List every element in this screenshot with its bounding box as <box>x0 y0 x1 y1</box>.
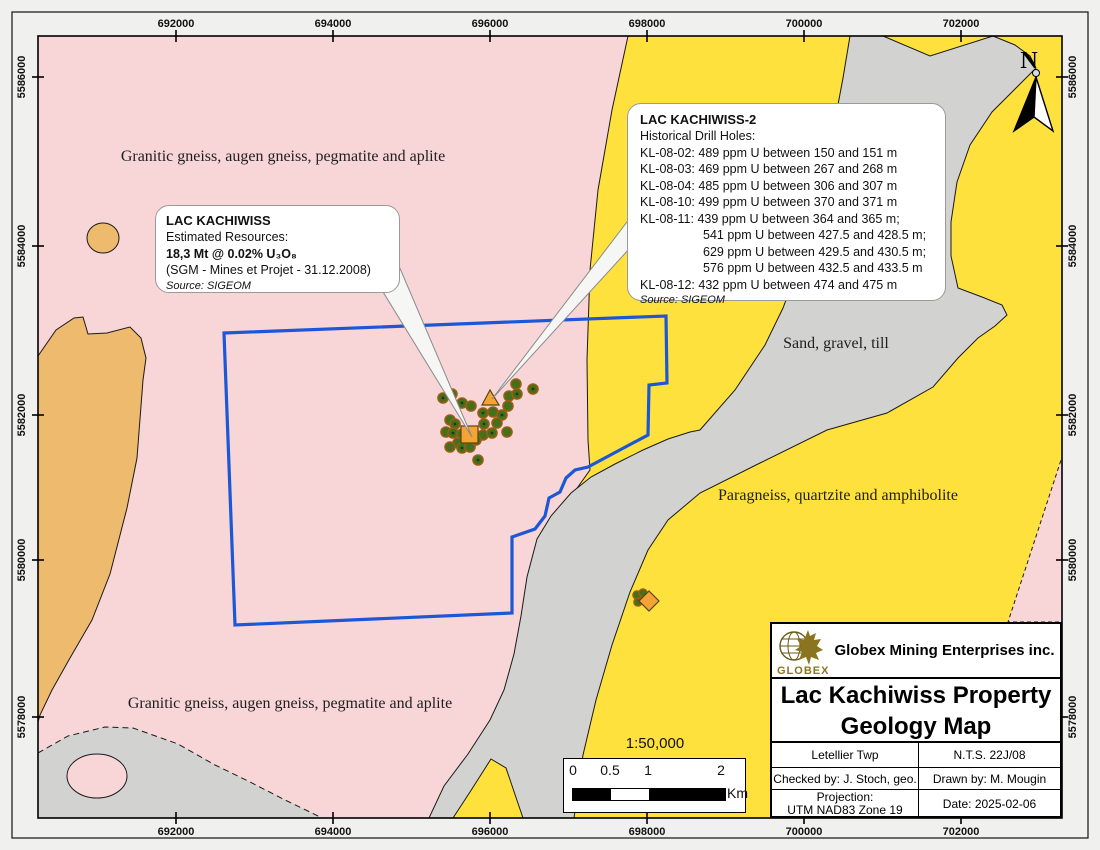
x-axis-label: 694000 <box>315 18 352 30</box>
drill-hole-dot <box>466 401 476 411</box>
y-axis-label: 5578000 <box>16 696 28 739</box>
y-axis-label: 5582000 <box>16 394 28 437</box>
callout-line: Estimated Resources: <box>166 229 389 246</box>
drawn-by-cell: Drawn by: M. Mougin <box>918 768 1060 790</box>
drill-hole-result: KL-08-03: 469 ppm U between 267 and 268 … <box>640 161 933 178</box>
label-granitic-north: Granitic gneiss, augen gneiss, pegmatite… <box>121 148 445 165</box>
x-axis-label: 696000 <box>472 18 509 30</box>
date-cell: Date: 2025-02-06 <box>918 790 1060 817</box>
callout-lac-kachiwiss: LAC KACHIWISS Estimated Resources: 18,3 … <box>155 205 400 293</box>
drill-hole-dot <box>503 401 513 411</box>
x-axis-bottom: 692000 694000 696000 698000 700000 70200… <box>158 826 980 838</box>
logo-globex-text: GLOBEX <box>777 665 829 676</box>
scale-unit-label: Km <box>727 785 748 801</box>
x-axis-label: 692000 <box>158 18 195 30</box>
callout-lac-kachiwiss-2: LAC KACHIWISS-2 Historical Drill Holes: … <box>627 103 946 301</box>
x-axis-label: 702000 <box>943 826 980 838</box>
y-axis-label: 5580000 <box>1067 539 1079 582</box>
title-block-company-row: GLOBEX Globex Mining Enterprises inc. <box>772 624 1060 679</box>
scale-tick-label: 0 <box>569 762 577 778</box>
north-arrow-pivot <box>1033 70 1040 77</box>
map-page: Granitic gneiss, augen gneiss, pegmatite… <box>0 0 1100 850</box>
scale-bar-graphic <box>572 788 726 801</box>
drill-hole-dot <box>511 379 521 389</box>
title-block: GLOBEX Globex Mining Enterprises inc. La… <box>770 622 1062 818</box>
township-cell: Letellier Twp <box>772 743 918 768</box>
drill-hole-result: KL-08-11: 439 ppm U between 364 and 365 … <box>640 211 933 228</box>
globex-logo: GLOBEX <box>775 626 829 676</box>
drill-hole-dot <box>492 418 502 428</box>
x-axis-top: 692000 694000 696000 698000 700000 70200… <box>158 18 980 30</box>
company-name: Globex Mining Enterprises inc. <box>829 642 1060 659</box>
drill-hole-result: KL-08-10: 499 ppm U between 370 and 371 … <box>640 194 933 211</box>
label-sand-gravel-till: Sand, gravel, till <box>783 335 889 352</box>
map-title: Lac Kachiwiss Property Geology Map <box>772 679 1060 743</box>
projection-value: UTM NAD83 Zone 19 <box>787 804 902 817</box>
deposit-marker-square <box>461 426 478 443</box>
callout-line: (SGM - Mines et Projet - 31.12.2008) <box>166 262 389 279</box>
callout-resource-line: 18,3 Mt @ 0.02% U₃O₈ <box>166 246 389 263</box>
scale-ratio-label: 1:50,000 <box>585 735 725 752</box>
nts-cell: N.T.S. 22J/08 <box>918 743 1060 768</box>
scale-tick-label: 2 <box>717 762 725 778</box>
x-axis-label: 698000 <box>629 18 666 30</box>
drill-hole-result: 629 ppm U between 429.5 and 430.5 m; <box>640 244 933 261</box>
scale-tick-label: 1 <box>644 762 652 778</box>
y-axis-label: 5584000 <box>16 225 28 268</box>
y-axis-label: 5582000 <box>1067 394 1079 437</box>
label-paragneiss: Paragneiss, quartzite and amphibolite <box>718 487 958 504</box>
drill-hole-result: KL-08-12: 432 ppm U between 474 and 475 … <box>640 277 933 294</box>
x-axis-label: 700000 <box>786 826 823 838</box>
region-orange-unit-oval <box>87 223 119 253</box>
y-axis-label: 5578000 <box>1067 696 1079 739</box>
scale-bar: 0 0.5 1 2 Km <box>563 758 746 813</box>
drill-hole-result: 576 ppm U between 432.5 and 433.5 m <box>640 260 933 277</box>
drill-hole-dot <box>445 442 455 452</box>
y-axis-left: 5586000 5584000 5582000 5580000 5578000 <box>16 56 28 739</box>
drill-hole-result: 541 ppm U between 427.5 and 428.5 m; <box>640 227 933 244</box>
y-axis-label: 5584000 <box>1067 225 1079 268</box>
callout-title: LAC KACHIWISS <box>166 212 389 229</box>
y-axis-label: 5586000 <box>16 56 28 99</box>
y-axis-right: 5586000 5584000 5582000 5580000 5578000 <box>1067 56 1079 739</box>
drill-hole-result: KL-08-04: 485 ppm U between 306 and 307 … <box>640 178 933 195</box>
x-axis-label: 692000 <box>158 826 195 838</box>
projection-cell: Projection: UTM NAD83 Zone 19 <box>772 790 918 817</box>
projection-label: Projection: <box>787 791 902 804</box>
callout-subtitle: Historical Drill Holes: <box>640 128 933 145</box>
x-axis-label: 694000 <box>315 826 352 838</box>
x-axis-label: 696000 <box>472 826 509 838</box>
callout-source: Source: SIGEOM <box>166 279 389 293</box>
x-axis-label: 698000 <box>629 826 666 838</box>
x-axis-label: 700000 <box>786 18 823 30</box>
map-title-line1: Lac Kachiwiss Property <box>772 680 1060 711</box>
map-title-line2: Geology Map <box>772 711 1060 742</box>
region-pink-island <box>67 754 127 798</box>
scale-tick-label: 0.5 <box>600 762 619 778</box>
x-axis-label: 702000 <box>943 18 980 30</box>
callout-source: Source: SIGEOM <box>640 293 933 307</box>
callout-title: LAC KACHIWISS-2 <box>640 111 933 128</box>
drill-hole-dot <box>502 427 512 437</box>
checked-by-cell: Checked by: J. Stoch, geo. <box>772 768 918 790</box>
drill-hole-result: KL-08-02: 489 ppm U between 150 and 151 … <box>640 145 933 162</box>
y-axis-label: 5580000 <box>16 539 28 582</box>
y-axis-label: 5586000 <box>1067 56 1079 99</box>
label-granitic-south: Granitic gneiss, augen gneiss, pegmatite… <box>128 695 452 712</box>
